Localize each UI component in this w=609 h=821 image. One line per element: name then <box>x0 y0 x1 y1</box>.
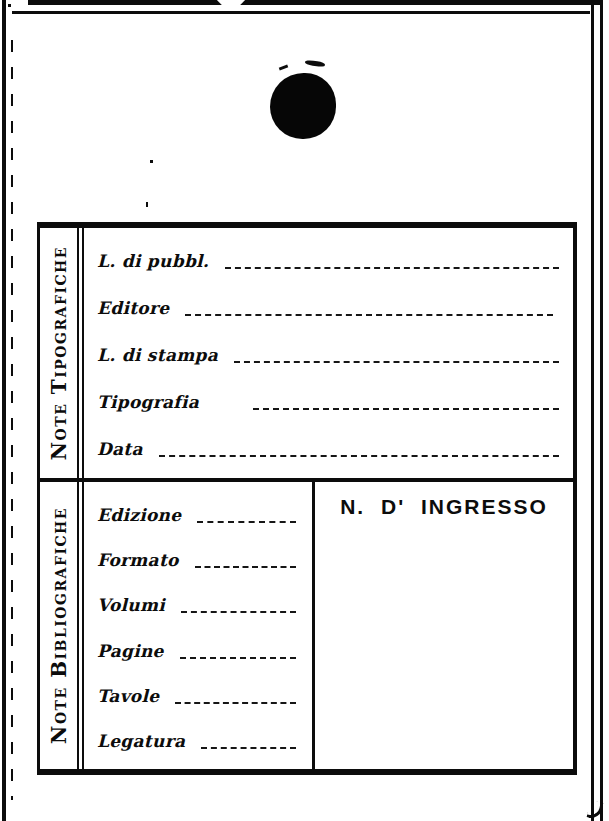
field-label: Editore <box>97 298 169 318</box>
scan-edge-left-dashed-rule <box>11 40 13 800</box>
field-row-editore: Editore <box>97 284 565 331</box>
catalog-card-table: Note Tipografiche L. di pubbl. Editore L… <box>37 222 577 775</box>
section-title-note-bibliografiche: Note Bibliografiche <box>47 507 71 744</box>
blank-dotted-rule <box>175 702 296 704</box>
field-row-formato: Formato <box>97 537 304 582</box>
tipografiche-fields: L. di pubbl. Editore L. di stampa Tipogr… <box>84 228 573 478</box>
bibliografiche-fields: Edizione Formato Volumi Pagine Tavole <box>84 482 312 769</box>
field-row-luogo-pubblicazione: L. di pubbl. <box>97 237 565 284</box>
field-label: L. di stampa <box>97 345 218 365</box>
section-title-column: Note Tipografiche <box>40 228 84 478</box>
scan-edge-top-band <box>28 0 600 5</box>
hole-punch-smudge <box>305 60 326 68</box>
blank-dotted-rule <box>253 408 559 410</box>
field-row-data: Data <box>97 426 565 473</box>
field-row-tavole: Tavole <box>97 673 304 718</box>
scan-edge-right-rule-outer <box>600 0 603 821</box>
scan-speck <box>146 202 148 207</box>
field-label: Tavole <box>97 686 159 706</box>
scan-edge-right-rule-inner <box>591 4 594 821</box>
section-title-column: Note Bibliografiche <box>40 482 84 769</box>
field-row-pagine: Pagine <box>97 628 304 673</box>
field-label: Edizione <box>97 505 181 525</box>
ingresso-heading: N. D' INGRESSO <box>340 495 548 519</box>
hole-punch-smudge <box>279 65 288 71</box>
field-label: Formato <box>97 550 179 570</box>
field-label: L. di pubbl. <box>97 251 209 271</box>
blank-dotted-rule <box>197 521 296 523</box>
field-label: Tipografia <box>97 392 199 412</box>
blank-dotted-rule <box>225 267 559 269</box>
blank-dotted-rule <box>181 611 296 613</box>
hole-punch <box>270 73 336 139</box>
blank-dotted-rule <box>180 657 296 659</box>
blank-dotted-rule <box>159 455 559 457</box>
field-label: Volumi <box>97 595 165 615</box>
blank-dotted-rule <box>195 566 296 568</box>
field-label: Data <box>97 439 143 459</box>
field-label: Pagine <box>97 641 164 661</box>
section-note-bibliografiche: Note Bibliografiche Edizione Formato Vol… <box>40 482 573 769</box>
field-row-edizione: Edizione <box>97 492 304 537</box>
scan-edge-top-rule <box>12 11 590 14</box>
field-label: Legatura <box>97 731 185 751</box>
ingresso-box: N. D' INGRESSO <box>315 482 573 769</box>
blank-dotted-rule <box>201 747 296 749</box>
field-row-legatura: Legatura <box>97 719 304 764</box>
scan-speck <box>150 160 153 163</box>
blank-dotted-rule <box>234 361 559 363</box>
blank-dotted-rule <box>185 314 553 316</box>
field-row-volumi: Volumi <box>97 583 304 628</box>
scanned-catalog-card: Note Tipografiche L. di pubbl. Editore L… <box>0 0 609 821</box>
scan-speck <box>8 4 11 7</box>
field-row-tipografia: Tipografia <box>97 379 565 426</box>
field-row-luogo-stampa: L. di stampa <box>97 331 565 378</box>
section-title-note-tipografiche: Note Tipografiche <box>47 246 71 460</box>
scan-edge-left-rule <box>2 0 6 821</box>
section-note-tipografiche: Note Tipografiche L. di pubbl. Editore L… <box>40 228 573 478</box>
